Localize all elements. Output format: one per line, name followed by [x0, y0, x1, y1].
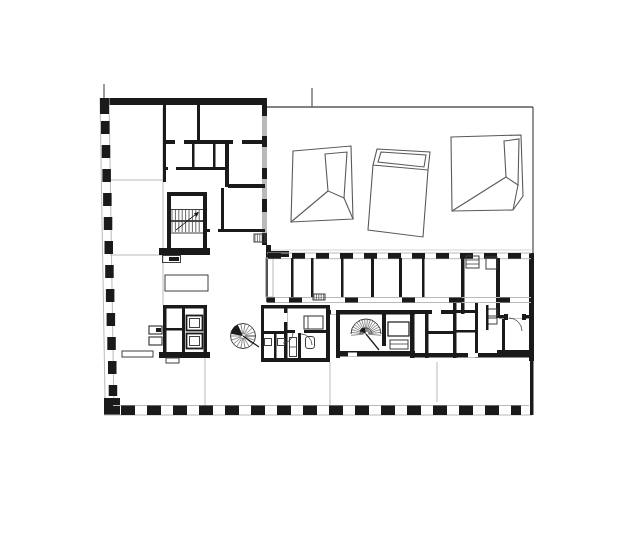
skylight-right	[451, 135, 523, 211]
right-wall	[529, 253, 534, 415]
main-staircase	[159, 192, 210, 263]
floor-plan-canvas	[0, 0, 640, 533]
elevator-block	[149, 305, 210, 363]
bottom-pier-wall	[104, 406, 532, 416]
skylight-left	[291, 146, 353, 222]
spiral-stair	[231, 324, 260, 349]
fan-stair-room	[330, 310, 415, 358]
wc-block	[261, 305, 330, 362]
roof-outline	[266, 107, 533, 253]
top-wall	[104, 98, 267, 105]
left-pier-wall	[100, 98, 120, 415]
skylight-middle	[368, 149, 430, 237]
right-rooms	[414, 303, 531, 358]
floor-plan-drawing	[0, 0, 640, 533]
furniture-misc	[122, 234, 325, 357]
